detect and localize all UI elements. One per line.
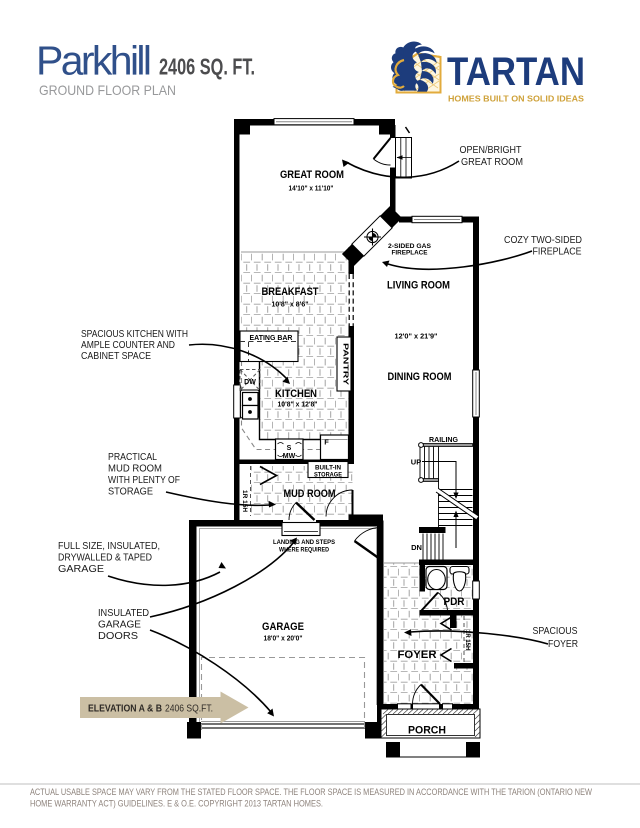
svg-text:LANDING AND STEPS: LANDING AND STEPS bbox=[273, 539, 335, 546]
svg-text:S: S bbox=[287, 445, 292, 452]
svg-text:FIREPLACE: FIREPLACE bbox=[392, 250, 428, 257]
svg-text:GARAGE: GARAGE bbox=[262, 621, 304, 633]
svg-text:TARTAN: TARTAN bbox=[447, 50, 585, 94]
svg-text:2406 SQ.FT.: 2406 SQ.FT. bbox=[165, 703, 213, 715]
svg-text:BUILT-IN: BUILT-IN bbox=[315, 465, 341, 472]
svg-text:DINING ROOM: DINING ROOM bbox=[388, 371, 452, 383]
svg-text:WITH PLENTY OF: WITH PLENTY OF bbox=[108, 474, 180, 486]
svg-text:OPEN/BRIGHT: OPEN/BRIGHT bbox=[460, 144, 523, 156]
svg-text:UP: UP bbox=[411, 458, 421, 467]
svg-text:ACTUAL USABLE SPACE MAY VARY F: ACTUAL USABLE SPACE MAY VARY FROM THE ST… bbox=[30, 787, 592, 798]
svg-text:CABINET SPACE: CABINET SPACE bbox=[81, 350, 151, 362]
svg-text:14'10" x 11'10": 14'10" x 11'10" bbox=[289, 184, 334, 193]
svg-text:STORAGE: STORAGE bbox=[314, 472, 342, 479]
svg-text:FOYER: FOYER bbox=[548, 638, 578, 650]
svg-text:PANTRY: PANTRY bbox=[342, 343, 349, 385]
svg-text:DW: DW bbox=[244, 379, 256, 386]
svg-text:10'8" x 8'6": 10'8" x 8'6" bbox=[272, 300, 309, 309]
svg-text:BREAKFAST: BREAKFAST bbox=[262, 286, 319, 298]
svg-text:ELEVATION A & B: ELEVATION A & B bbox=[88, 703, 162, 715]
svg-text:RAILING: RAILING bbox=[429, 435, 458, 444]
svg-text:SPACIOUS: SPACIOUS bbox=[533, 625, 578, 637]
svg-text:GROUND FLOOR PLAN: GROUND FLOOR PLAN bbox=[39, 82, 176, 98]
svg-text:COZY TWO-SIDED: COZY TWO-SIDED bbox=[504, 234, 582, 246]
svg-text:GREAT ROOM: GREAT ROOM bbox=[461, 156, 523, 168]
svg-text:FOYER: FOYER bbox=[398, 649, 437, 661]
svg-text:12'0" x 21'9": 12'0" x 21'9" bbox=[395, 332, 438, 341]
svg-text:EATING BAR: EATING BAR bbox=[250, 333, 294, 342]
svg-text:MW: MW bbox=[283, 453, 296, 460]
svg-text:2406 SQ. FT.: 2406 SQ. FT. bbox=[159, 54, 255, 80]
svg-text:GARAGE: GARAGE bbox=[98, 619, 141, 631]
svg-text:18'0" x 20'0": 18'0" x 20'0" bbox=[264, 634, 303, 643]
svg-text:MUD ROOM: MUD ROOM bbox=[108, 463, 162, 475]
svg-text:FULL SIZE, INSULATED,: FULL SIZE, INSULATED, bbox=[58, 540, 160, 552]
svg-text:STORAGE: STORAGE bbox=[108, 486, 153, 498]
svg-text:Parkhill: Parkhill bbox=[36, 38, 152, 84]
svg-text:GARAGE: GARAGE bbox=[58, 563, 104, 575]
svg-text:PORCH: PORCH bbox=[408, 725, 446, 737]
svg-text:LIVING ROOM: LIVING ROOM bbox=[387, 280, 450, 292]
svg-text:FIREPLACE: FIREPLACE bbox=[533, 246, 582, 258]
svg-text:HOMES BUILT ON SOLID IDEAS: HOMES BUILT ON SOLID IDEAS bbox=[448, 94, 584, 104]
svg-text:INSULATED: INSULATED bbox=[98, 607, 149, 619]
svg-text:1R 15H: 1R 15H bbox=[464, 630, 470, 650]
svg-text:HOME WARRANTY ACT) GUIDELINES.: HOME WARRANTY ACT) GUIDELINES. E & O.E. … bbox=[30, 799, 323, 810]
svg-text:PRACTICAL: PRACTICAL bbox=[108, 451, 157, 463]
svg-text:F: F bbox=[324, 438, 329, 447]
svg-text:MUD ROOM: MUD ROOM bbox=[284, 488, 336, 500]
svg-text:1R 15H: 1R 15H bbox=[241, 490, 248, 512]
svg-text:DOORS: DOORS bbox=[98, 630, 138, 642]
svg-text:KITCHEN: KITCHEN bbox=[275, 388, 317, 400]
svg-text:GREAT ROOM: GREAT ROOM bbox=[280, 169, 344, 181]
svg-text:PDR: PDR bbox=[444, 596, 465, 608]
svg-text:10'8" x 12'8": 10'8" x 12'8" bbox=[278, 400, 318, 409]
svg-text:DN: DN bbox=[411, 543, 422, 552]
svg-text:DRYWALLED & TAPED: DRYWALLED & TAPED bbox=[58, 552, 152, 564]
